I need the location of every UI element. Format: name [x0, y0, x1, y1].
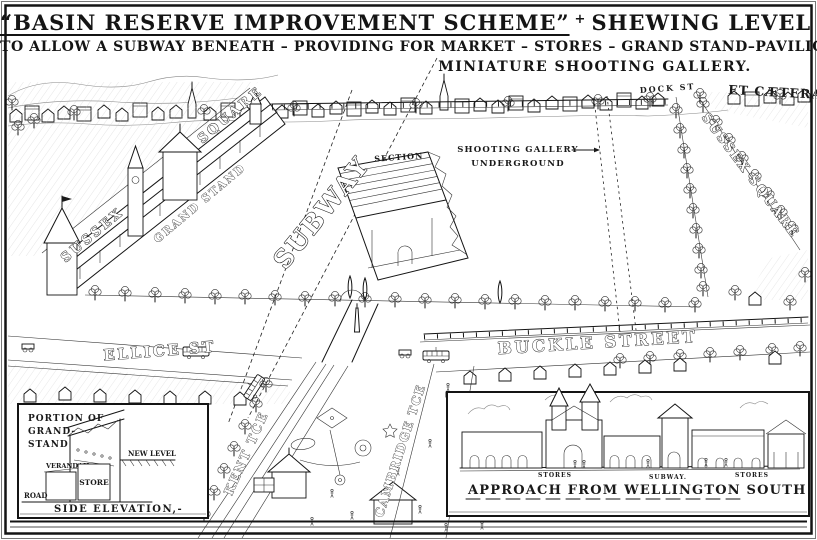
label-shooting-gallery: SHOOTING GALLERY	[457, 145, 579, 155]
title-ornament: +	[575, 12, 587, 27]
tram	[423, 347, 449, 363]
inset-a-title-3: STAND	[28, 440, 69, 450]
garden-kiosk	[272, 472, 306, 498]
engraved-plan-page: SUSSEX SQUARE GRAND STAND DOCK ST SUSSEX…	[0, 0, 817, 540]
sussex-square-east	[670, 92, 811, 310]
inset-b-subway: SUBWAY.	[649, 474, 687, 481]
cart	[22, 344, 34, 352]
main-title: “BASIN RESERVE IMPROVEMENT SCHEME”+SHEWI…	[0, 10, 817, 35]
inset-b-caption: APPROACH FROM WELLINGTON SOUTH	[467, 483, 807, 498]
central-pavilion	[163, 152, 197, 200]
inset-approach: STORES SUBWAY. STORES APPROACH FROM WELL…	[447, 384, 809, 516]
clock-tower	[128, 168, 143, 236]
inset-b-stores-right: STORES	[735, 472, 769, 479]
ornamental-gardens	[254, 383, 464, 531]
subtitle: TO ALLOW A SUBWAY BENEATH – PROVIDING FO…	[0, 39, 817, 55]
engraving-canvas: SUSSEX SQUARE GRAND STAND DOCK ST SUSSEX…	[0, 0, 817, 540]
south-tree-row	[85, 276, 701, 312]
label-underground: UNDERGROUND	[471, 159, 565, 169]
inset-b-stores-left: STORES	[538, 472, 572, 479]
inset-a-store: STORE	[79, 478, 109, 487]
label-dock-st: DOCK ST	[639, 81, 695, 95]
arrow-head	[594, 148, 600, 153]
main-title-text: “BASIN RESERVE IMPROVEMENT SCHEME”	[0, 10, 570, 35]
inset-side-elevation: PORTION OF GRAND- STAND NEW LEVEL VERAND…	[18, 404, 208, 518]
inset-a-new-level: NEW LEVEL	[128, 449, 176, 458]
main-title-tail: SHEWING LEVEL RAISED	[591, 10, 817, 35]
inset-a-caption: SIDE ELEVATION,-	[54, 504, 183, 515]
label-ellice-st: ELLICE ST	[103, 338, 217, 365]
label-buckle-street: BUCKLE STREET	[497, 327, 698, 358]
inset-a-title-1: PORTION OF	[28, 414, 104, 424]
inset-a-road: ROAD	[24, 491, 47, 500]
obelisk	[355, 308, 360, 332]
label-sussex-east: SUSSEX SQUARE	[698, 111, 802, 242]
title-block: “BASIN RESERVE IMPROVEMENT SCHEME”+SHEWI…	[0, 10, 817, 55]
subtitle-line3: MINIATURE SHOOTING GALLERY.	[430, 59, 760, 75]
